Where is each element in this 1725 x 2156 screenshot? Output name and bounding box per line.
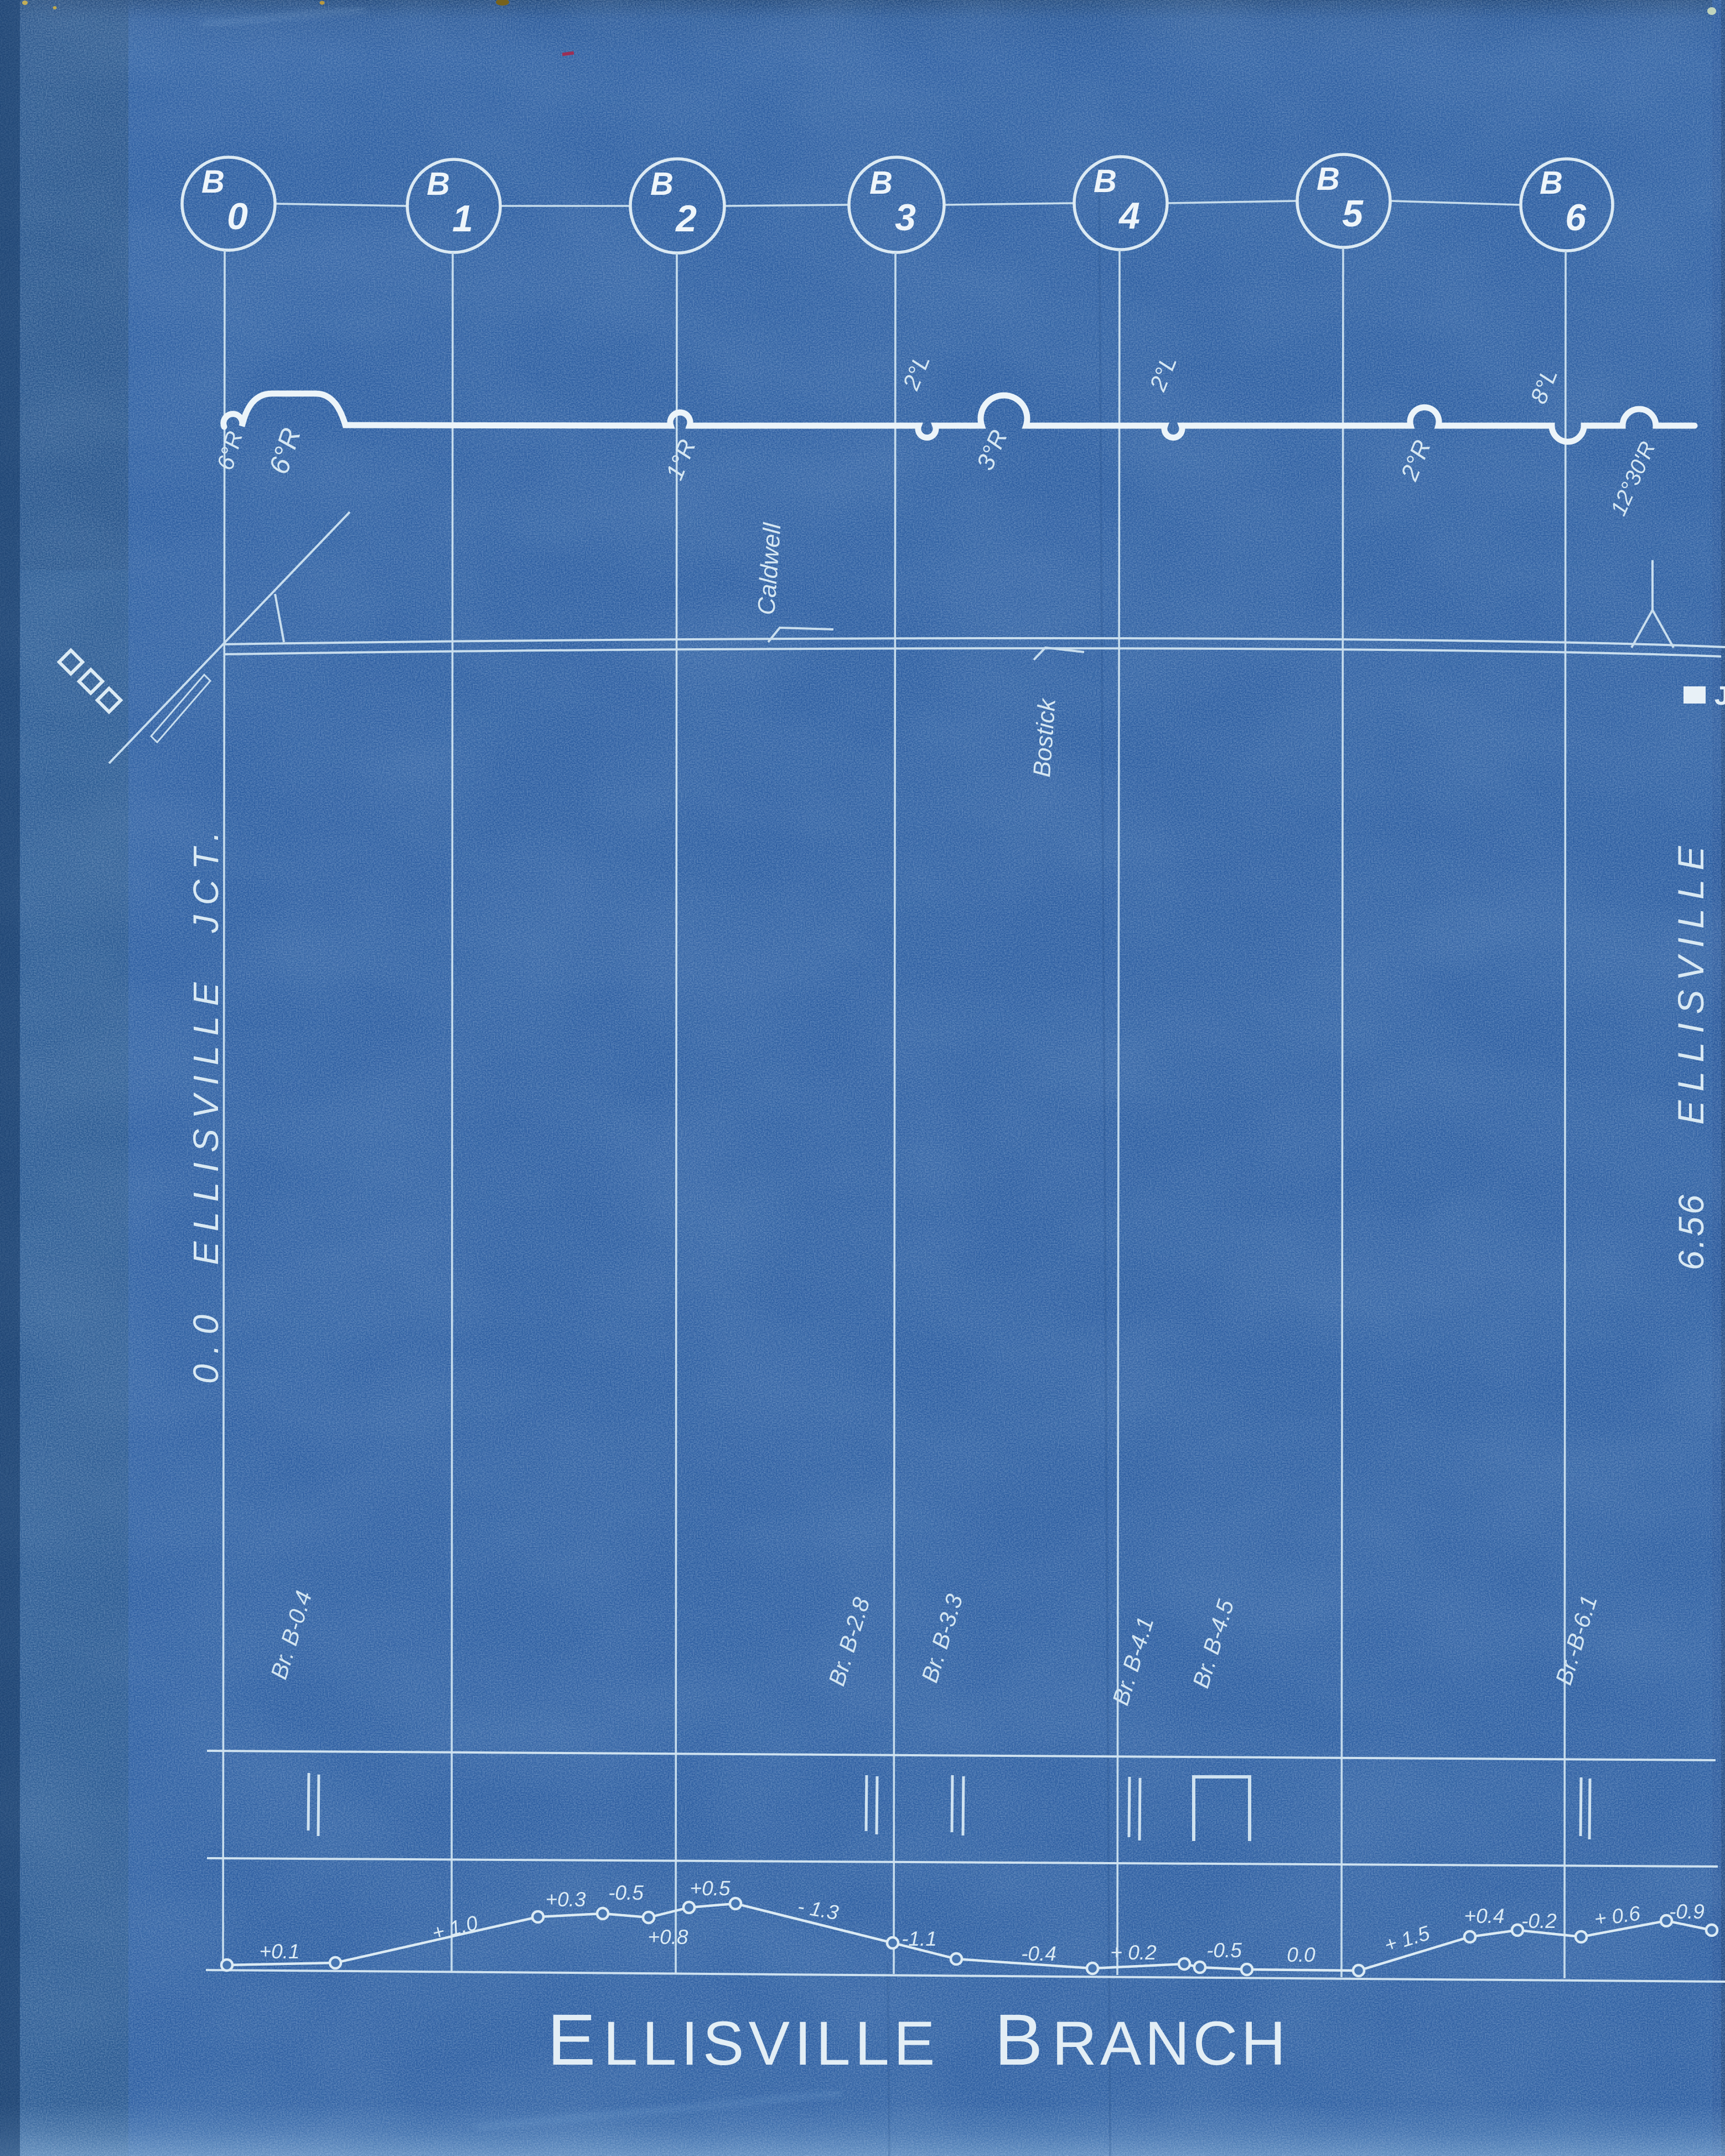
svg-text:B: B bbox=[1317, 161, 1340, 197]
svg-text:2: 2 bbox=[675, 198, 697, 240]
svg-text:LLISVILLE: LLISVILLE bbox=[603, 2009, 940, 2078]
svg-text:E: E bbox=[547, 1999, 595, 2080]
svg-text:0: 0 bbox=[227, 195, 248, 237]
svg-text:0.0 ELLISVILLE JCT.: 0.0 ELLISVILLE JCT. bbox=[186, 821, 226, 1384]
svg-text:B: B bbox=[1540, 165, 1563, 201]
svg-text:-0.5: -0.5 bbox=[1206, 1939, 1242, 1962]
svg-text:+0.8: +0.8 bbox=[647, 1926, 688, 1948]
svg-text:-0.9: -0.9 bbox=[1669, 1900, 1705, 1923]
svg-text:B: B bbox=[650, 166, 674, 202]
svg-text:B: B bbox=[869, 165, 893, 201]
svg-text:J: J bbox=[1714, 681, 1725, 711]
svg-text:-0.2: -0.2 bbox=[1521, 1910, 1557, 1932]
svg-text:0.0: 0.0 bbox=[1287, 1943, 1315, 1966]
svg-text:-1.1: -1.1 bbox=[902, 1927, 937, 1950]
svg-text:6.56: 6.56 bbox=[1671, 1192, 1711, 1270]
svg-text:4: 4 bbox=[1118, 195, 1140, 237]
svg-text:B: B bbox=[201, 164, 225, 200]
svg-text:+ 0.2: + 0.2 bbox=[1110, 1941, 1157, 1964]
svg-text:-0.4: -0.4 bbox=[1021, 1942, 1056, 1965]
svg-text:+0.1: +0.1 bbox=[259, 1940, 299, 1963]
svg-text:6: 6 bbox=[1565, 197, 1587, 239]
svg-text:B: B bbox=[1094, 163, 1117, 199]
svg-text:Bostick: Bostick bbox=[1028, 697, 1061, 778]
svg-text:+0.5: +0.5 bbox=[690, 1877, 730, 1900]
svg-text:3: 3 bbox=[895, 197, 916, 239]
svg-text:RANCH: RANCH bbox=[1052, 2009, 1289, 2078]
svg-text:5: 5 bbox=[1342, 193, 1364, 235]
svg-text:+0.4: +0.4 bbox=[1464, 1905, 1504, 1927]
svg-text:B: B bbox=[994, 1999, 1043, 2080]
svg-text:B: B bbox=[427, 166, 450, 202]
svg-text:+0.3: +0.3 bbox=[545, 1888, 586, 1911]
svg-text:ELLISVILLE: ELLISVILLE bbox=[1670, 837, 1711, 1125]
svg-text:1: 1 bbox=[452, 198, 473, 240]
svg-text:-0.5: -0.5 bbox=[608, 1881, 644, 1904]
